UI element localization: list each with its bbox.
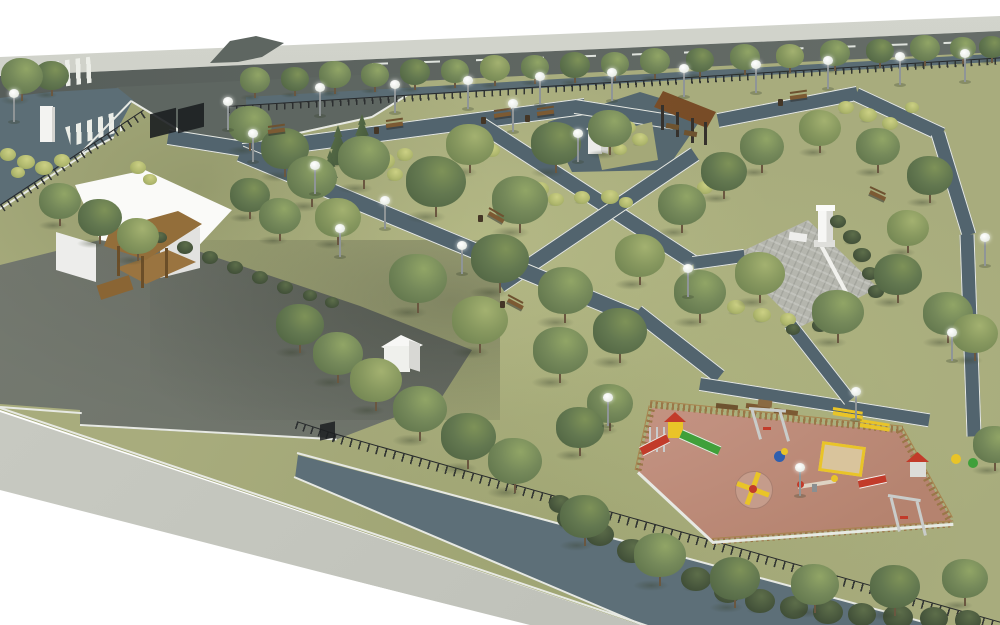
bush [601,190,619,204]
bush [35,161,53,175]
tree-crown [560,52,590,78]
tree-crown [674,270,726,314]
tree-crown [952,314,998,353]
bush [11,167,25,178]
tree-crown [710,557,760,600]
street-lamp-orb [508,99,518,108]
tree-crown [740,128,784,165]
tree-shadow [556,78,585,87]
tree-shadow [524,374,576,391]
tree-crown [39,183,81,219]
tree-shadow [476,81,505,90]
tree-shadow [863,608,911,623]
tree-crown [856,128,900,165]
lamp-pole [394,86,396,113]
tree-crown [488,438,542,484]
tree-shadow [397,208,454,226]
street-lamp-orb [895,52,905,61]
tree-shadow [626,578,675,594]
bush [177,241,193,254]
tree-crown [874,254,922,295]
tree-crown [588,110,632,147]
tree-shadow [636,74,665,83]
street-lamp-orb [947,328,957,337]
lamp-pole [227,103,229,130]
lamp-pole [252,135,254,162]
tower2-wall [910,461,926,477]
bush [905,102,919,113]
swing2-seat [900,516,908,519]
street-lamp-orb [315,83,325,92]
pergola-post-1 [661,105,664,130]
lamp-pole [899,58,901,85]
tree-crown [556,407,604,448]
tree-shadow [444,344,497,361]
porch-post-3 [165,248,168,278]
bush [0,148,16,161]
lamp-pole [951,334,953,361]
lamp-pole [339,230,341,257]
bush [277,281,293,294]
tree-shadow [666,315,715,331]
tree-shadow [935,599,979,613]
street-lamp-orb [795,463,805,472]
tree-crown [866,39,894,63]
bush [753,308,771,322]
bush [202,251,218,264]
lamp-pole [683,70,685,97]
tree-shadow [728,295,776,310]
tree-crown [979,36,1000,58]
lamp-pole [384,202,386,229]
street-lamp-orb [980,233,990,242]
tree-shadow [793,146,833,159]
trash-bin [374,127,379,134]
tree-crown [1,58,43,94]
bush [325,297,339,308]
tree-crown [281,67,309,91]
bush [955,610,981,625]
tree-shadow [221,144,263,157]
tree-shadow [396,85,425,94]
street-lamp-orb [390,80,400,89]
bush [882,117,898,130]
tree-shadow [867,295,913,309]
bush [786,324,800,335]
trash-bin [500,301,505,308]
tree-crown [615,234,665,277]
tree-crown [640,48,670,74]
tree-shadow [784,605,830,619]
bush [681,567,711,591]
carousel-center [749,485,757,493]
tree-crown [531,122,581,165]
tree-shadow [342,403,391,419]
tree-shadow [553,538,601,553]
tree-crown [338,136,390,180]
tree-crown [887,210,929,246]
tree-crown [776,44,804,68]
mushroom-table-yellow [951,454,961,464]
bush [227,261,243,274]
lamp-pole [577,135,579,162]
street-lamp-orb [223,97,233,106]
bush [303,290,317,301]
street-lamp-orb [573,129,583,138]
tree-shadow [432,460,484,477]
seesaw-end-yellow [831,475,838,482]
tree-crown [361,63,389,87]
bush [632,133,648,146]
tree-crown [735,252,785,295]
street-lamp-orb [823,56,833,65]
bush [619,197,633,208]
tree-shadow [33,219,73,232]
bush [574,191,590,204]
tree-crown [389,254,447,303]
tree-shadow [480,484,531,500]
tree-shadow [581,148,623,161]
street-lamp-orb [683,264,693,273]
tree-shadow [816,66,845,75]
tree-crown [560,495,610,538]
street-lamp-orb [310,161,320,170]
lamp-pole [607,399,609,426]
lamp-pole [827,62,829,89]
tree-crown [533,327,588,374]
street-lamp-orb [603,393,613,402]
tree-crown [634,533,686,577]
street-lamp-orb [851,387,861,396]
tree-crown [240,67,270,93]
bush [54,154,70,167]
street-lamp-orb [9,89,19,98]
tree-shadow [900,196,944,210]
tree-shadow [585,354,636,370]
lamp-pole [611,74,613,101]
sign-board-side [52,107,55,142]
tree-crown [400,59,430,85]
lamp-pole [799,469,801,496]
tree-crown [910,35,940,61]
tree-crown [78,199,122,236]
street-lamp-orb [380,196,390,205]
bush [143,174,157,185]
tree-crown [350,358,402,402]
tree-crown [471,234,529,283]
street-lamp-orb [248,129,258,138]
tree-shadow [330,181,379,197]
street-lamp-orb [751,60,761,69]
parking-gate [320,421,335,440]
tree-crown [593,308,647,354]
tree-crown [799,110,841,146]
tree-shadow [306,375,354,390]
tree-crown [812,290,864,334]
lamp-pole [855,393,857,420]
tree-shadow [906,61,935,70]
trash-bin [478,215,483,222]
tree-shadow [804,335,853,351]
park-3d-render [0,0,1000,625]
tree-crown [942,559,988,598]
tree-crown [393,386,447,432]
spring-rider-top [781,448,788,455]
street-lamp-orb [607,68,617,77]
tree-crown [480,55,510,81]
bush [838,101,854,114]
monument-cap [816,205,835,211]
bush [830,215,846,228]
tree-crown [538,267,593,314]
tree-crown [441,413,496,460]
tree-crown [701,152,747,191]
bush [859,108,877,122]
tree-crown [446,124,494,165]
tree-shadow [385,432,436,448]
street-lamp-orb [960,49,970,58]
bush [548,193,564,206]
street-lamp-orb [679,64,689,73]
sandbox [818,441,866,477]
lamp-pole [984,239,986,266]
tree-crown [791,564,839,605]
swing1-seat [763,427,771,430]
tree-crown [658,184,706,225]
street-lamp-orb [463,76,473,85]
tree-shadow [726,70,755,79]
lamp-pole [964,55,966,82]
trash-bin [525,115,530,122]
lamp-pole [467,82,469,109]
seesaw-pivot [812,484,817,492]
lamp-pole [512,105,514,132]
tree-shadow [308,238,352,252]
tree-shadow [651,225,697,239]
tree-crown [870,565,920,608]
street-lamp-orb [335,224,345,233]
tree-shadow [849,166,891,179]
lamp-pole [539,78,541,105]
booth-side [409,340,420,372]
bush [397,148,413,161]
bush [843,230,861,244]
lamp-pole [13,95,15,122]
tree-shadow [608,277,656,292]
tree-shadow [549,448,595,462]
tree-shadow [111,254,151,267]
bush [252,271,268,284]
tree-shadow [253,234,293,247]
tree-shadow [703,600,751,615]
tree-crown [406,156,466,207]
tree-crown [259,198,301,234]
street-lamp-orb [535,72,545,81]
tree-crown [117,218,159,254]
lamp-pole [755,66,757,93]
bush [387,168,403,181]
street-lamp-orb [457,241,467,250]
trash-bin [778,99,783,106]
lamp-pole [687,270,689,297]
pergola-post-4 [704,122,707,145]
tree-shadow [269,345,315,359]
bush [853,248,871,262]
lamp-pole [314,167,316,194]
bush [130,161,146,174]
lamp-pole [319,89,321,116]
tree-shadow [71,237,113,250]
trash-bin [481,117,486,124]
tree-crown [907,156,953,195]
lamp-pole [461,247,463,274]
tree-crown [686,48,714,72]
tree-shadow [236,93,265,102]
